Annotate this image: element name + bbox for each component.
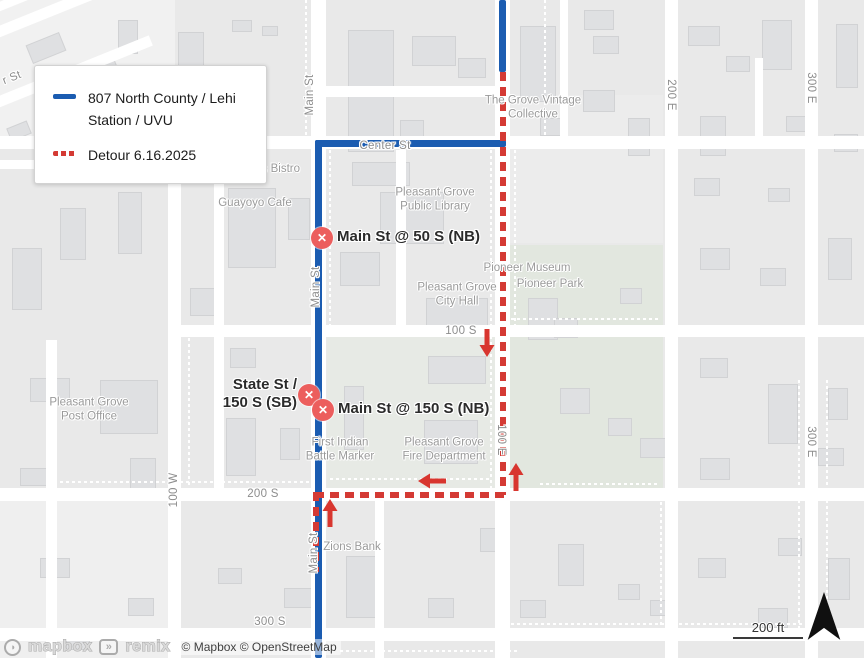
map-building (428, 598, 454, 618)
map-building (340, 252, 380, 286)
map-building (520, 26, 556, 102)
road-vertical (168, 130, 181, 658)
map-building (700, 458, 730, 480)
attribution-bar: ◑ mapbox » remix © Mapbox © OpenStreetMa… (4, 638, 341, 656)
map-building (768, 384, 798, 444)
crosswalk-dots (660, 490, 662, 628)
map-building (828, 238, 852, 280)
street-name-label: 100 E (495, 424, 507, 456)
route-line-swatch (53, 94, 76, 99)
road-horizontal (318, 86, 505, 97)
crosswalk-dots (540, 483, 660, 485)
map-building (262, 26, 278, 36)
crosswalk-dots (305, 0, 307, 136)
map-building (12, 248, 42, 310)
map-building (130, 458, 156, 490)
poi-label: Pleasant GroveFire Department (402, 436, 485, 465)
map-building (584, 10, 614, 30)
x-icon: ✕ (318, 404, 328, 416)
map-building (232, 20, 252, 32)
scale-bar: 200 ft (733, 620, 803, 639)
closure-label: Main St @ 50 S (NB) (337, 228, 480, 246)
map-building (698, 558, 726, 578)
poi-label: First IndianBattle Marker (306, 436, 374, 465)
crosswalk-dots (514, 150, 516, 325)
street-name-label: 300 E (805, 426, 817, 458)
closure-label: State St /150 S (SB) (223, 376, 297, 413)
street-name-label: Center St (359, 140, 410, 152)
poi-label: Zions Bank (323, 540, 381, 554)
map-building (118, 192, 142, 254)
map-building (583, 90, 615, 112)
map-building (458, 58, 486, 78)
legend-detour-row: Detour 6.16.2025 (53, 145, 252, 167)
closure-x-marker: ✕ (312, 399, 334, 421)
crosswalk-dots (60, 481, 310, 483)
map-building (608, 418, 632, 436)
map-building (218, 568, 242, 584)
map-building (128, 598, 154, 616)
x-icon: ✕ (304, 389, 314, 401)
map-building (558, 544, 584, 586)
map-building (694, 178, 720, 196)
map-building (280, 428, 300, 460)
legend-panel: 807 North County / Lehi Station / UVU De… (34, 65, 267, 184)
scale-line (733, 637, 803, 639)
street-name-label: 100 W (168, 473, 180, 508)
poi-label: Pleasant GrovePublic Library (395, 186, 474, 215)
map-building (60, 208, 86, 260)
poi-label: Pleasant GroveCity Hall (417, 281, 496, 310)
closure-x-marker: ✕ (311, 227, 333, 249)
detour-direction-arrow (508, 463, 524, 491)
street-name-label: 300 S (254, 616, 286, 628)
street-name-label: 200 E (665, 79, 677, 111)
poi-label: Pioneer Museum (484, 261, 571, 275)
detour-line-swatch (53, 151, 76, 156)
street-name-label: Main St (308, 532, 320, 573)
street-name-label: 300 E (805, 72, 817, 104)
map-building (412, 36, 456, 66)
detour-direction-arrow (418, 473, 446, 489)
copyright-attribution[interactable]: © Mapbox © OpenStreetMap (178, 639, 341, 655)
map-building (828, 388, 848, 420)
map-building (836, 24, 858, 88)
street-name-label: 100 S (445, 325, 477, 337)
crosswalk-dots (188, 332, 190, 488)
street-name-label: Main St (304, 74, 316, 115)
remix-wordmark[interactable]: remix (125, 638, 170, 656)
remix-logo-icon[interactable]: » (99, 639, 118, 655)
map-building (593, 36, 619, 54)
road-horizontal (170, 325, 864, 337)
crosswalk-dots (330, 478, 490, 480)
crosswalk-dots (490, 150, 492, 488)
crosswalk-dots (798, 380, 800, 628)
map-building (618, 584, 640, 600)
poi-label: Pioneer Park (517, 277, 583, 291)
map-canvas[interactable]: r StMain StCenter StMain StMain St100 W1… (0, 0, 864, 658)
detour-dashed-line (315, 492, 506, 498)
map-building (688, 26, 720, 46)
map-building (760, 268, 786, 286)
road-vertical (755, 58, 763, 140)
map-building (768, 188, 790, 202)
scale-label: 200 ft (733, 620, 803, 635)
map-building (640, 438, 666, 458)
crosswalk-dots (826, 380, 828, 628)
closure-label: Main St @ 150 S (NB) (338, 400, 489, 418)
map-building (20, 468, 48, 486)
map-building (230, 348, 256, 368)
map-building (226, 418, 256, 476)
map-building (700, 248, 730, 270)
map-building (762, 20, 792, 70)
map-building (428, 356, 486, 384)
map-building (700, 358, 728, 378)
mapbox-logo-icon[interactable]: ◑ (4, 639, 21, 656)
bus-route-line (499, 0, 506, 72)
street-name-label: 200 S (247, 488, 279, 500)
map-building (726, 56, 750, 72)
detour-direction-arrow (322, 499, 338, 527)
north-arrow-icon (806, 592, 842, 642)
street-name-label: Main St (310, 266, 322, 307)
crosswalk-dots (340, 650, 520, 652)
poi-label: Pleasant GrovePost Office (49, 396, 128, 425)
poi-label: Guayoyo Cafe (218, 196, 292, 210)
map-building (620, 288, 642, 304)
map-building (818, 448, 844, 466)
map-building (284, 588, 312, 608)
crosswalk-dots (505, 318, 660, 320)
legend-route-row: 807 North County / Lehi Station / UVU (53, 88, 252, 131)
legend-detour-label: Detour 6.16.2025 (88, 145, 196, 167)
detour-direction-arrow (479, 329, 495, 357)
map-building (560, 388, 590, 414)
poi-label: The Grove VintageCollective (485, 94, 581, 123)
map-building (520, 600, 546, 618)
mapbox-wordmark[interactable]: mapbox (28, 638, 92, 656)
legend-route-label: 807 North County / Lehi Station / UVU (88, 88, 236, 131)
x-icon: ✕ (317, 232, 327, 244)
